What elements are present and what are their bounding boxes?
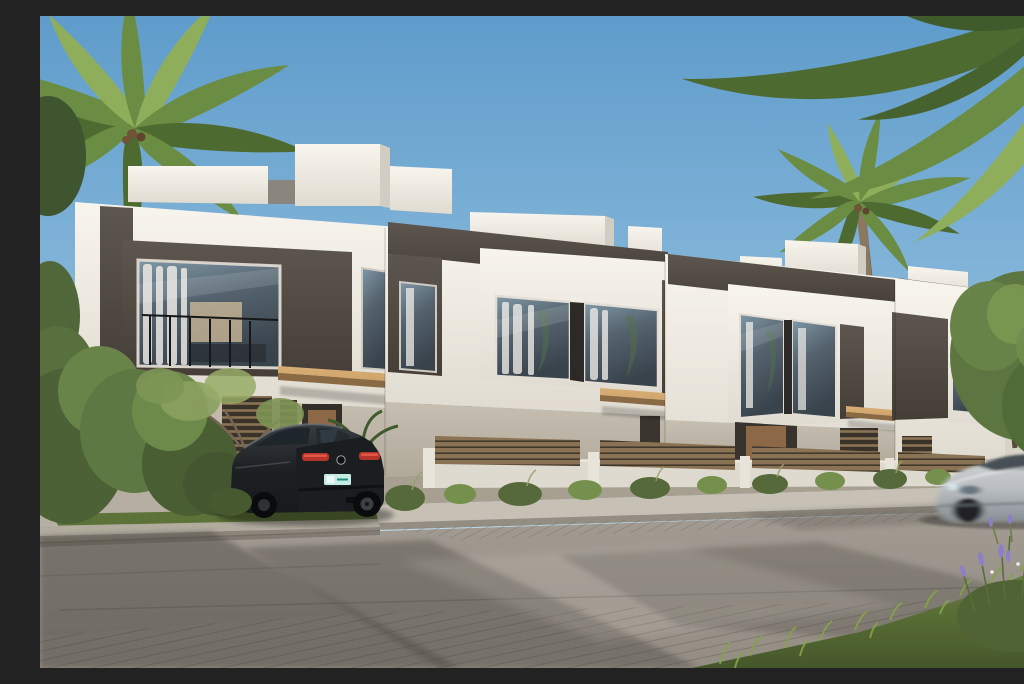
window-unit1 [138,260,280,368]
townhouse-unit-3 [665,240,898,470]
windows-unit2 [496,296,658,388]
scene-canvas [40,16,1024,668]
license-plate [324,474,351,485]
car-badge [337,456,345,464]
architectural-render: Sunny architectural rendering of a row o… [40,16,1024,668]
windows-unit3 [740,314,836,418]
bush-front-of-suv [208,488,252,516]
